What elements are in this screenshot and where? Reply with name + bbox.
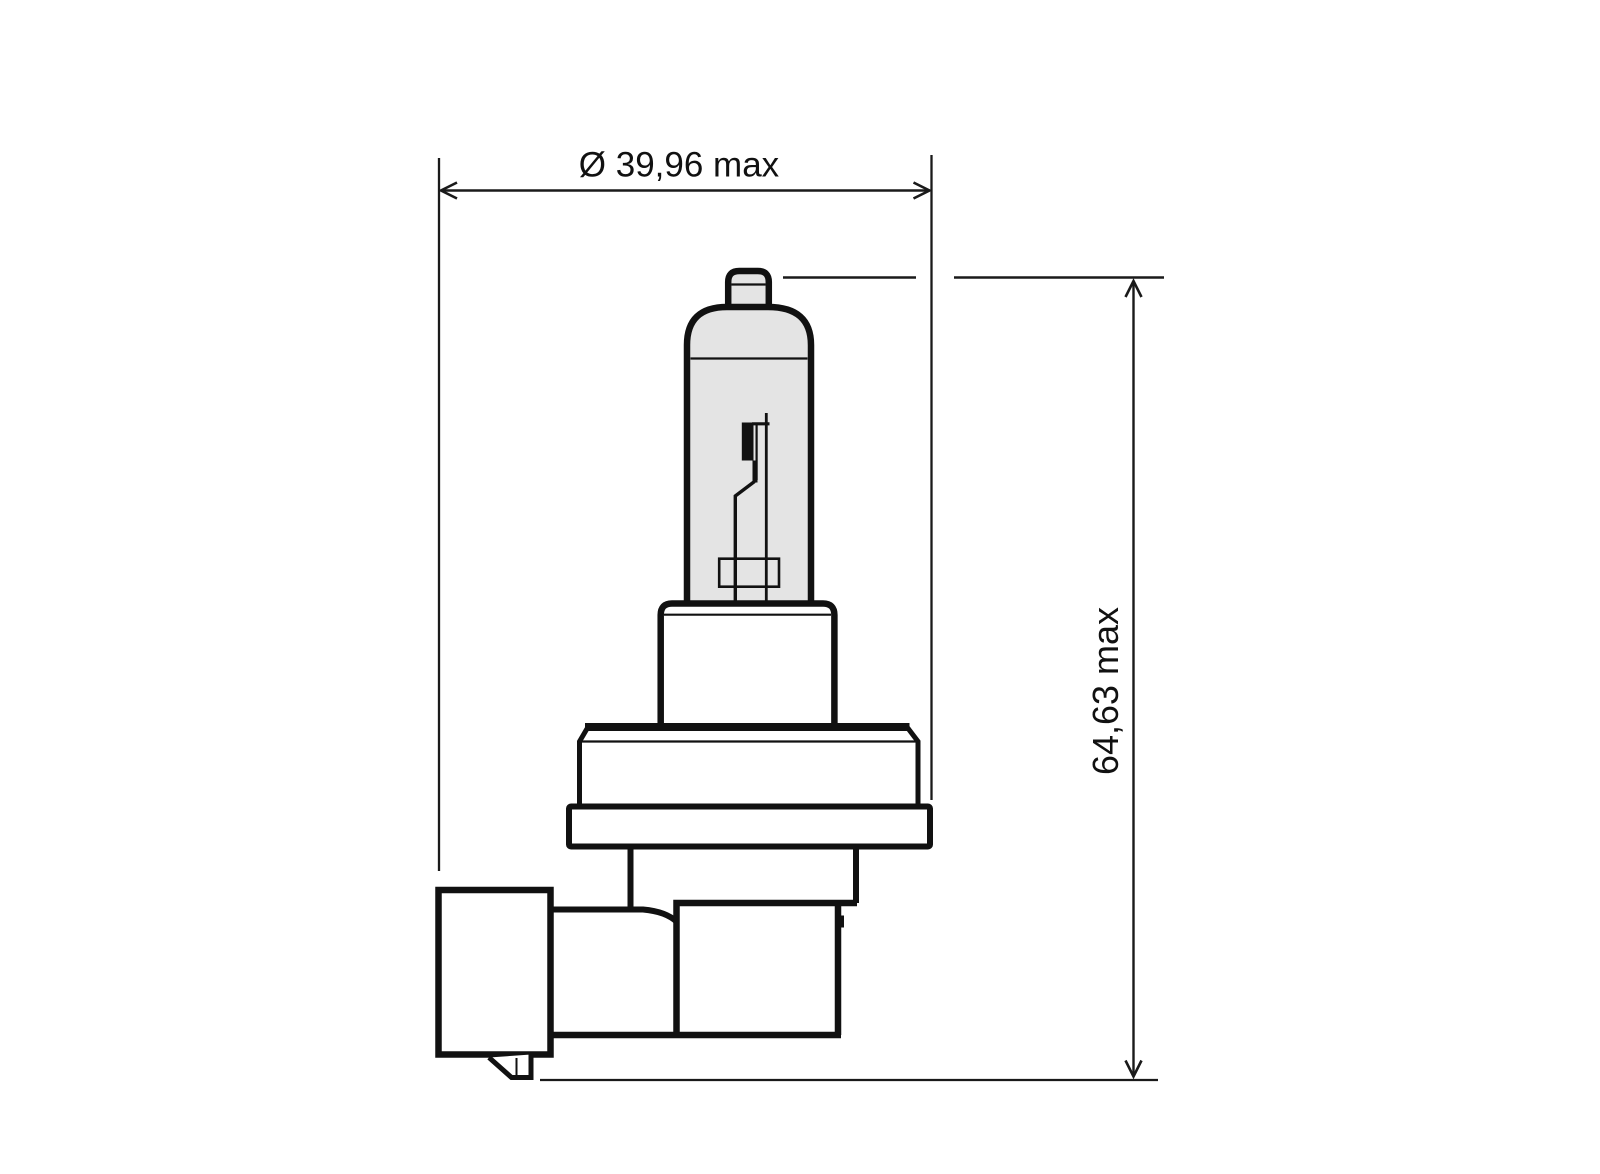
svg-text:Ø 39,96 max: Ø 39,96 max: [579, 146, 780, 185]
svg-text:64,63 max: 64,63 max: [1085, 607, 1126, 775]
